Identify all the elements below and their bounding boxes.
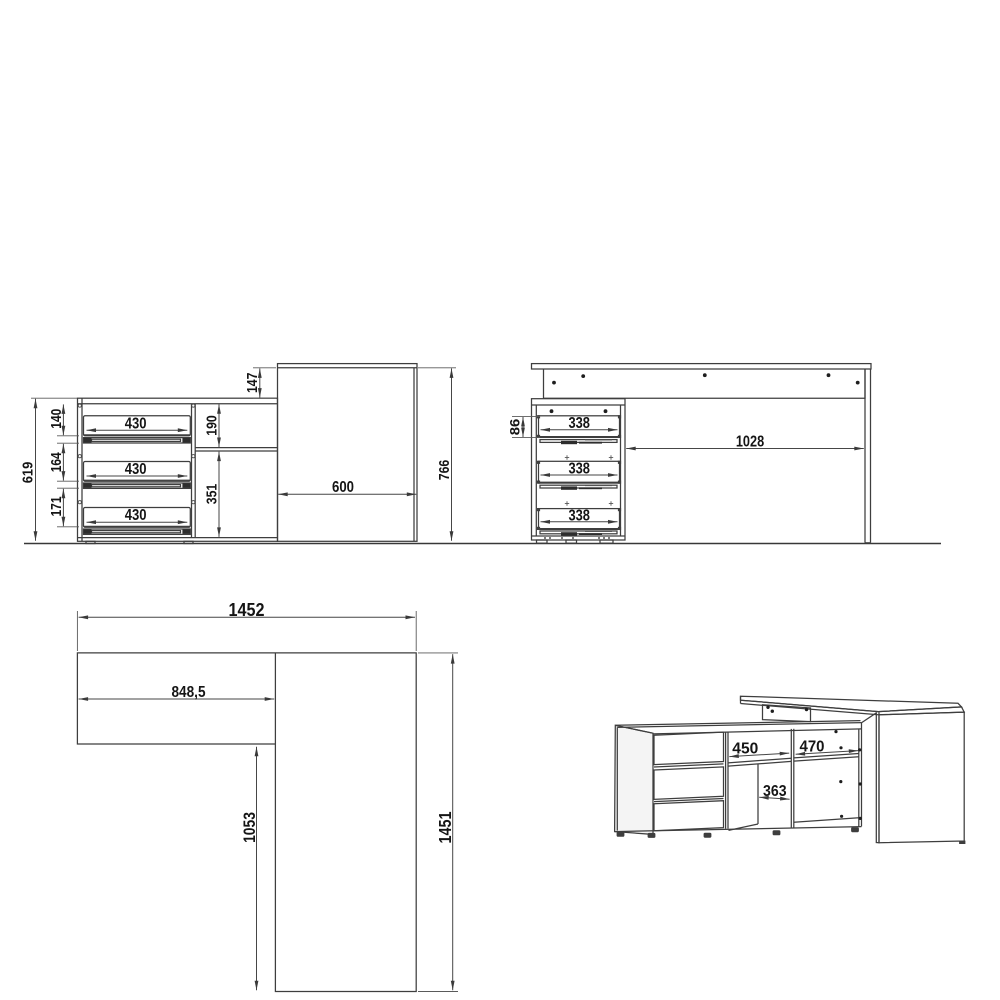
svg-text:1053: 1053 — [240, 812, 259, 843]
svg-text:1452: 1452 — [229, 600, 265, 620]
svg-text:140: 140 — [48, 409, 65, 429]
svg-text:363: 363 — [763, 783, 787, 800]
svg-text:600: 600 — [332, 479, 354, 496]
svg-text:164: 164 — [48, 452, 65, 473]
svg-text:147: 147 — [244, 373, 261, 394]
svg-text:470: 470 — [800, 738, 825, 755]
svg-text:430: 430 — [125, 461, 147, 478]
svg-text:86: 86 — [507, 418, 522, 435]
svg-text:619: 619 — [19, 462, 36, 484]
svg-text:430: 430 — [125, 507, 147, 524]
svg-text:171: 171 — [48, 497, 65, 517]
svg-text:351: 351 — [203, 484, 220, 505]
svg-text:1451: 1451 — [435, 811, 455, 843]
svg-text:1028: 1028 — [736, 433, 765, 450]
svg-text:848,5: 848,5 — [172, 684, 206, 701]
svg-text:766: 766 — [436, 460, 453, 481]
svg-text:190: 190 — [203, 415, 220, 436]
svg-text:450: 450 — [732, 740, 758, 757]
